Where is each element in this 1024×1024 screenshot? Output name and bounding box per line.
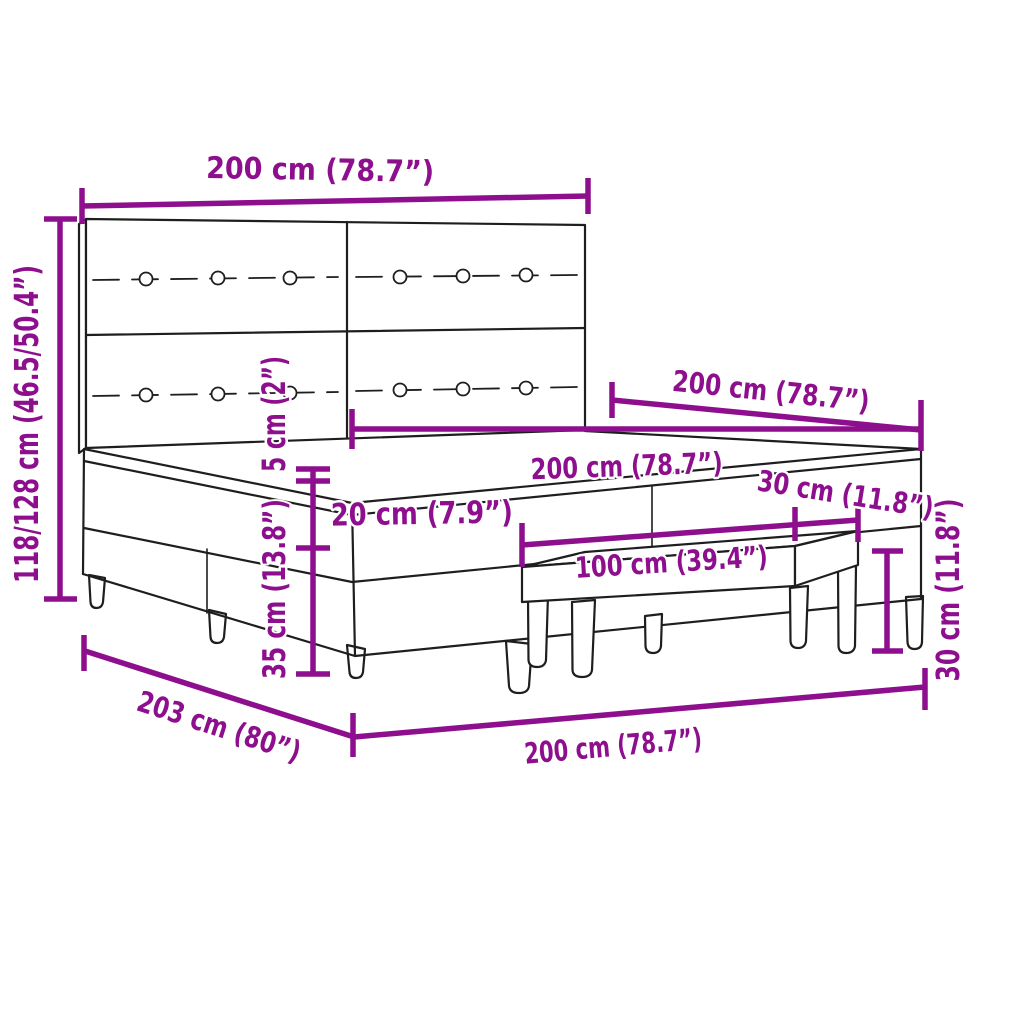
bed-leg <box>347 645 365 678</box>
bed-left-back-edge <box>83 449 84 574</box>
bed-leg <box>906 596 923 649</box>
dim-line-headboard-width <box>82 196 588 206</box>
headboard <box>79 219 585 453</box>
diagram-canvas: 200 cm (78.7”) 118/128 cm (46.5/50.4”) 5… <box>0 0 1024 1024</box>
bench-leg <box>528 595 548 667</box>
dim-label-mattress-width: 200 cm (78.7”) <box>530 446 723 487</box>
dim-label-bench-depth: 30 cm (11.8”) <box>755 463 936 524</box>
bench-leg <box>838 566 856 653</box>
bed-dimension-diagram: 200 cm (78.7”) 118/128 cm (46.5/50.4”) 5… <box>0 0 1024 1024</box>
mattress-top-far-edge <box>585 431 921 449</box>
dim-label-base-height: 35 cm (13.8”) <box>257 499 293 679</box>
dim-label-bench-height: 30 cm (11.8”) <box>929 499 967 682</box>
bench-leg <box>790 586 808 648</box>
bench-leg <box>645 614 662 653</box>
dim-label-headboard-width: 200 cm (78.7”) <box>206 151 435 190</box>
dim-label-total-height: 118/128 cm (46.5/50.4”) <box>7 265 46 583</box>
bench-leg <box>572 600 595 677</box>
dim-label-frame-depth: 203 cm (80”) <box>133 684 305 769</box>
dim-label-topper-height: 5 cm (2”) <box>255 356 293 472</box>
dim-label-frame-width: 200 cm (78.7”) <box>523 721 703 770</box>
dim-label-mattress-height: 20 cm (7.9”) <box>331 494 514 533</box>
